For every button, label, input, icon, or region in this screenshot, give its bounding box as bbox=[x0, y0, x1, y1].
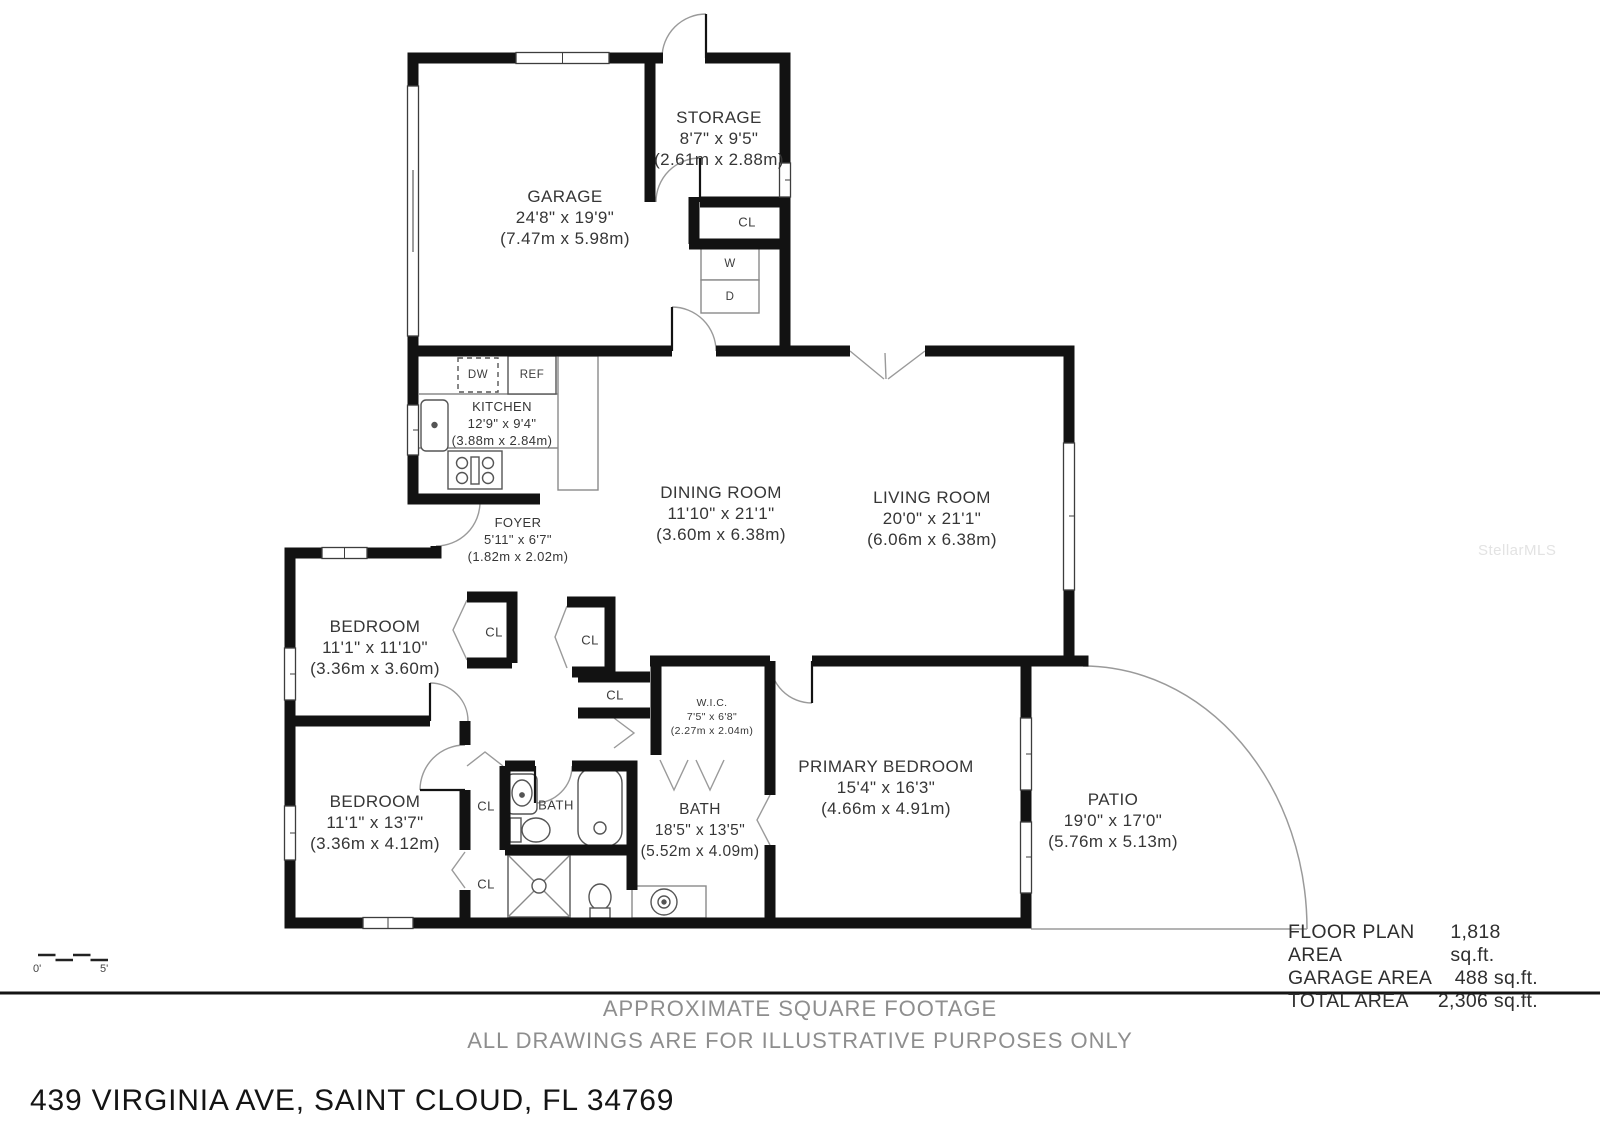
room-label-storage: STORAGE 8'7" x 9'5" (2.61m x 2.88m) bbox=[654, 107, 784, 170]
room-label-garage: GARAGE 24'8" x 19'9" (7.47m x 5.98m) bbox=[500, 186, 630, 249]
room-name: BATH bbox=[641, 799, 760, 820]
room-name: W.I.C. bbox=[671, 696, 753, 710]
room-label-bedroom1: BEDROOM 11'1" x 11'10" (3.36m x 3.60m) bbox=[310, 616, 440, 679]
dishwasher-label: DW bbox=[468, 369, 488, 381]
room-label-living: LIVING ROOM 20'0" x 21'1" (6.06m x 6.38m… bbox=[867, 487, 997, 550]
room-label-foyer: FOYER 5'11" x 6'7" (1.82m x 2.02m) bbox=[468, 514, 569, 565]
toilet-bowl bbox=[522, 818, 550, 842]
toilet2-bowl bbox=[589, 884, 611, 910]
room-name: LIVING ROOM bbox=[867, 487, 997, 508]
closet-label-storage: CL bbox=[738, 215, 756, 230]
closet-label-hall: CL bbox=[581, 633, 599, 648]
room-name: STORAGE bbox=[654, 107, 784, 128]
room-dim-imperial: 11'1" x 13'7" bbox=[310, 812, 440, 833]
room-name: GARAGE bbox=[500, 186, 630, 207]
room-dim-metric: (3.60m x 6.38m) bbox=[656, 524, 786, 545]
room-dim-imperial: 5'11" x 6'7" bbox=[468, 531, 569, 548]
watermark: StellarMLS bbox=[1478, 542, 1556, 559]
room-dim-imperial: 18'5" x 13'5" bbox=[641, 820, 760, 841]
room-dim-metric: (3.36m x 3.60m) bbox=[310, 658, 440, 679]
closet-label-bedroom1: CL bbox=[485, 625, 503, 640]
refrigerator-label: REF bbox=[520, 369, 545, 381]
area-label: FLOOR PLAN AREA bbox=[1288, 921, 1450, 967]
room-dim-metric: (4.66m x 4.91m) bbox=[798, 798, 973, 819]
area-value: 1,818 sq.ft. bbox=[1450, 921, 1538, 967]
room-name: KITCHEN bbox=[452, 398, 553, 415]
room-dim-metric: (2.27m x 2.04m) bbox=[671, 724, 753, 738]
room-name: BEDROOM bbox=[310, 791, 440, 812]
room-label-kitchen: KITCHEN 12'9" x 9'4" (3.88m x 2.84m) bbox=[452, 398, 553, 449]
disclaimer-line2: ALL DRAWINGS ARE FOR ILLUSTRATIVE PURPOS… bbox=[0, 1028, 1600, 1054]
room-dim-imperial: 7'5" x 6'8" bbox=[671, 710, 753, 724]
room-dim-imperial: 20'0" x 21'1" bbox=[867, 508, 997, 529]
room-dim-metric: (3.36m x 4.12m) bbox=[310, 833, 440, 854]
washer-label: W bbox=[724, 258, 735, 270]
bath-small-label: BATH bbox=[538, 798, 574, 813]
room-dim-imperial: 11'1" x 11'10" bbox=[310, 637, 440, 658]
disclaimer-line1: APPROXIMATE SQUARE FOOTAGE bbox=[0, 996, 1600, 1022]
room-label-patio: PATIO 19'0" x 17'0" (5.76m x 5.13m) bbox=[1048, 789, 1178, 852]
room-dim-imperial: 15'4" x 16'3" bbox=[798, 777, 973, 798]
scale-bar bbox=[38, 955, 108, 960]
closet-label-bath2: CL bbox=[477, 877, 495, 892]
area-row-garage: GARAGE AREA 488 sq.ft. bbox=[1288, 967, 1538, 990]
room-dim-imperial: 24'8" x 19'9" bbox=[500, 207, 630, 228]
toilet2-tank bbox=[590, 908, 610, 918]
closet-label-bath1: CL bbox=[477, 799, 495, 814]
scale-end-label: 5' bbox=[100, 963, 108, 975]
room-label-wic: W.I.C. 7'5" x 6'8" (2.27m x 2.04m) bbox=[671, 696, 753, 738]
room-dim-metric: (3.88m x 2.84m) bbox=[452, 432, 553, 449]
room-name: BEDROOM bbox=[310, 616, 440, 637]
room-dim-imperial: 11'10" x 21'1" bbox=[656, 503, 786, 524]
room-label-dining: DINING ROOM 11'10" x 21'1" (3.60m x 6.38… bbox=[656, 482, 786, 545]
room-name: FOYER bbox=[468, 514, 569, 531]
room-dim-metric: (2.61m x 2.88m) bbox=[654, 149, 784, 170]
toilet-tank bbox=[510, 818, 521, 842]
room-dim-imperial: 19'0" x 17'0" bbox=[1048, 810, 1178, 831]
scale-start-label: 0' bbox=[33, 963, 41, 975]
room-dim-metric: (5.76m x 5.13m) bbox=[1048, 831, 1178, 852]
room-dim-metric: (1.82m x 2.02m) bbox=[468, 548, 569, 565]
area-row-floor-plan: FLOOR PLAN AREA 1,818 sq.ft. bbox=[1288, 921, 1538, 967]
floor-plan-page: STORAGE 8'7" x 9'5" (2.61m x 2.88m) GARA… bbox=[0, 0, 1600, 1130]
room-label-bath: BATH 18'5" x 13'5" (5.52m x 4.09m) bbox=[641, 799, 760, 862]
room-dim-metric: (6.06m x 6.38m) bbox=[867, 529, 997, 550]
room-name: DINING ROOM bbox=[656, 482, 786, 503]
room-name: PATIO bbox=[1048, 789, 1178, 810]
room-dim-metric: (5.52m x 4.09m) bbox=[641, 841, 760, 862]
room-name: PRIMARY BEDROOM bbox=[798, 756, 973, 777]
closet-label-hall2: CL bbox=[606, 688, 624, 703]
address: 439 VIRGINIA AVE, SAINT CLOUD, FL 34769 bbox=[30, 1084, 674, 1118]
room-label-bedroom2: BEDROOM 11'1" x 13'7" (3.36m x 4.12m) bbox=[310, 791, 440, 854]
room-label-primary: PRIMARY BEDROOM 15'4" x 16'3" (4.66m x 4… bbox=[798, 756, 973, 819]
dryer-label: D bbox=[726, 291, 735, 303]
room-dim-imperial: 12'9" x 9'4" bbox=[452, 415, 553, 432]
room-dim-imperial: 8'7" x 9'5" bbox=[654, 128, 784, 149]
area-value: 488 sq.ft. bbox=[1455, 967, 1538, 990]
room-dim-metric: (7.47m x 5.98m) bbox=[500, 228, 630, 249]
area-label: GARAGE AREA bbox=[1288, 967, 1432, 990]
